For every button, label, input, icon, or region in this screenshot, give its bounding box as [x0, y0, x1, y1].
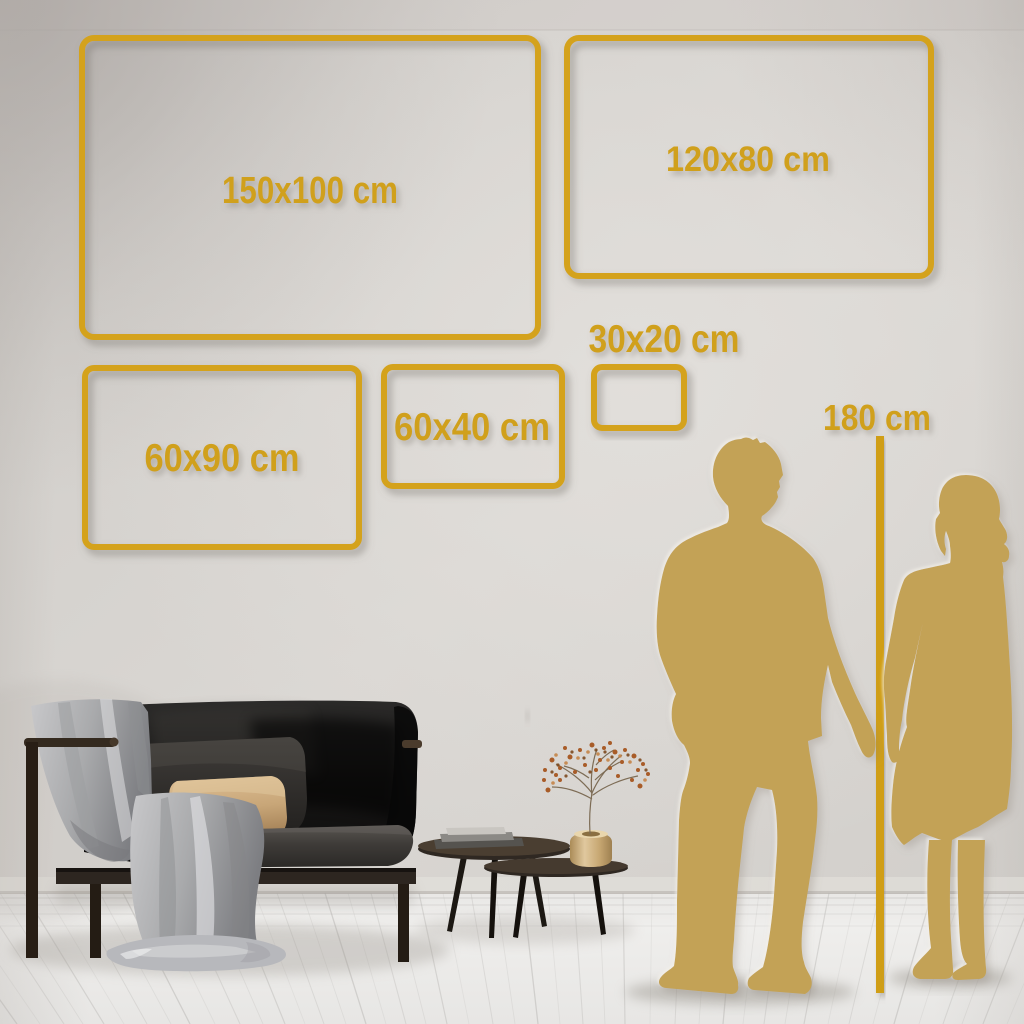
svg-text:180 cm: 180 cm [823, 397, 931, 438]
svg-text:60x40 cm: 60x40 cm [394, 406, 550, 449]
svg-text:60x90 cm: 60x90 cm [145, 437, 300, 480]
svg-text:30x20 cm: 30x20 cm [589, 318, 740, 361]
svg-text:120x80 cm: 120x80 cm [666, 140, 830, 179]
svg-text:150x100 cm: 150x100 cm [222, 170, 398, 212]
